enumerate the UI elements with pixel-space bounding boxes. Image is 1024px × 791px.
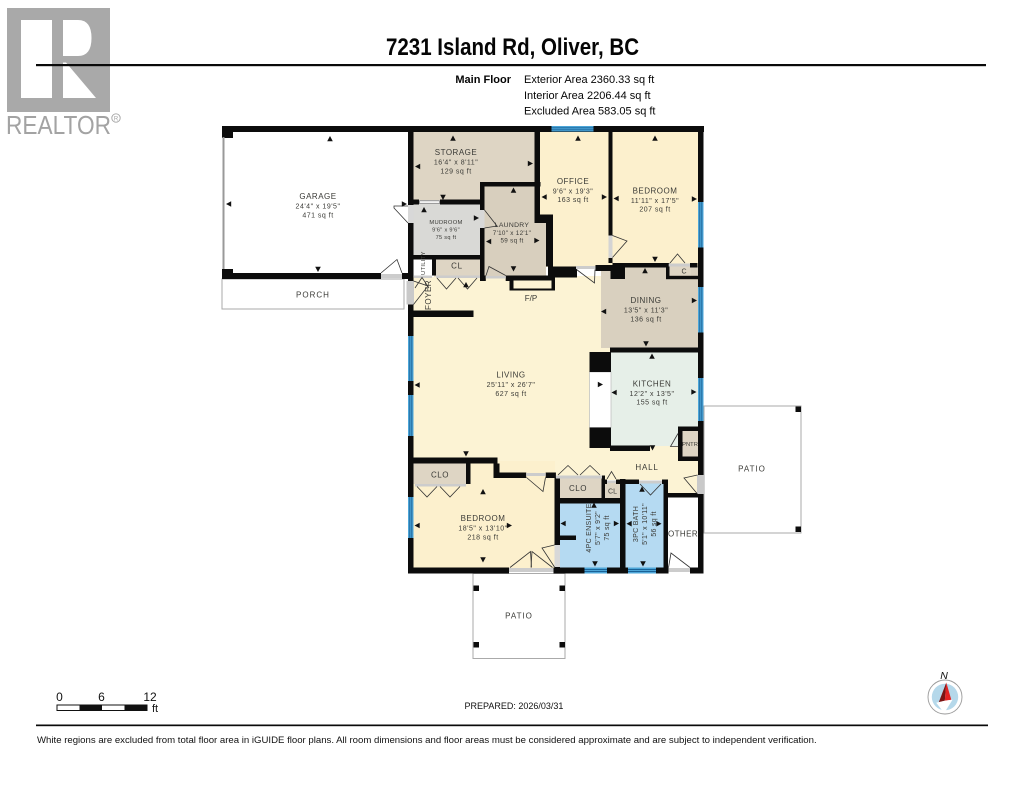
svg-text:REALTOR: REALTOR [6, 110, 111, 140]
svg-text:MUDROOM: MUDROOM [429, 220, 462, 226]
svg-text:C: C [681, 269, 686, 276]
svg-text:16'4" x 8'11": 16'4" x 8'11" [434, 160, 478, 167]
svg-text:HALL: HALL [635, 463, 658, 472]
svg-text:13'5" x 11'3": 13'5" x 11'3" [624, 308, 668, 315]
svg-text:PREPARED: 2026/03/31: PREPARED: 2026/03/31 [465, 701, 564, 711]
svg-text:627 sq ft: 627 sq ft [495, 391, 526, 398]
svg-text:5'1" x 10'11": 5'1" x 10'11" [642, 503, 649, 545]
svg-text:CL: CL [451, 262, 463, 271]
svg-text:9'6" x 9'6": 9'6" x 9'6" [432, 228, 460, 234]
svg-text:75 sq ft: 75 sq ft [436, 235, 457, 241]
svg-text:207 sq ft: 207 sq ft [639, 207, 670, 214]
svg-text:BEDROOM: BEDROOM [461, 514, 506, 523]
svg-text:F/P: F/P [525, 294, 537, 303]
svg-text:25'11" x 26'7": 25'11" x 26'7" [487, 382, 536, 389]
svg-text:163 sq ft: 163 sq ft [557, 197, 588, 204]
svg-text:5'7" x 9'2": 5'7" x 9'2" [595, 511, 602, 545]
svg-text:7'10" x 12'1": 7'10" x 12'1" [493, 230, 531, 237]
svg-text:218 sq ft: 218 sq ft [467, 535, 498, 542]
svg-text:59 sq ft: 59 sq ft [500, 238, 523, 245]
svg-text:18'5" x 13'10": 18'5" x 13'10" [458, 526, 507, 533]
svg-text:PNTR: PNTR [682, 442, 698, 448]
svg-text:12: 12 [143, 690, 157, 704]
svg-text:0: 0 [56, 690, 63, 704]
svg-text:56 sq ft: 56 sq ft [651, 511, 658, 536]
svg-text:CL: CL [608, 489, 617, 496]
svg-text:75 sq ft: 75 sq ft [604, 515, 611, 540]
svg-text:N: N [940, 670, 948, 682]
svg-text:9'6" x 19'3": 9'6" x 19'3" [553, 189, 594, 196]
svg-text:FOYER: FOYER [424, 280, 433, 310]
svg-text:PATIO: PATIO [738, 465, 766, 474]
svg-text:471 sq ft: 471 sq ft [302, 213, 333, 220]
svg-text:PORCH: PORCH [296, 291, 330, 300]
svg-text:White regions are excluded fro: White regions are excluded from total fl… [37, 735, 817, 746]
svg-text:4PC ENSUITE: 4PC ENSUITE [586, 503, 593, 552]
svg-text:CLO: CLO [431, 471, 449, 480]
svg-text:129 sq ft: 129 sq ft [440, 169, 471, 176]
svg-text:R: R [114, 117, 119, 123]
svg-text:KITCHEN: KITCHEN [633, 380, 672, 389]
svg-text:LIVING: LIVING [496, 371, 525, 380]
svg-text:UTILITY: UTILITY [421, 251, 427, 275]
svg-text:LAUNDRY: LAUNDRY [495, 222, 530, 229]
svg-text:BEDROOM: BEDROOM [633, 187, 678, 196]
svg-text:STORAGE: STORAGE [435, 148, 477, 157]
svg-text:11'11" x 17'5": 11'11" x 17'5" [631, 198, 679, 205]
svg-text:136 sq ft: 136 sq ft [630, 317, 661, 324]
svg-text:CLO: CLO [569, 484, 587, 493]
svg-text:155 sq ft: 155 sq ft [636, 400, 667, 407]
svg-text:Main Floor: Main Floor [455, 74, 511, 86]
svg-text:GARAGE: GARAGE [299, 192, 336, 201]
svg-text:12'2" x 13'5": 12'2" x 13'5" [630, 391, 675, 398]
svg-text:DINING: DINING [631, 296, 662, 305]
svg-text:OFFICE: OFFICE [557, 177, 589, 186]
svg-text:Exterior Area 2360.33 sq ft: Exterior Area 2360.33 sq ft [524, 74, 654, 86]
svg-text:3PC BATH: 3PC BATH [633, 506, 640, 542]
svg-text:ft: ft [152, 703, 158, 715]
svg-text:7231 Island Rd, Oliver, BC: 7231 Island Rd, Oliver, BC [386, 34, 639, 61]
svg-text:Excluded Area 583.05 sq ft: Excluded Area 583.05 sq ft [524, 106, 655, 118]
svg-text:Interior Area 2206.44 sq ft: Interior Area 2206.44 sq ft [524, 90, 651, 102]
svg-text:PATIO: PATIO [505, 612, 533, 621]
svg-text:OTHER: OTHER [668, 530, 698, 539]
svg-text:24'4" x 19'5": 24'4" x 19'5" [296, 204, 341, 211]
svg-text:6: 6 [98, 690, 105, 704]
